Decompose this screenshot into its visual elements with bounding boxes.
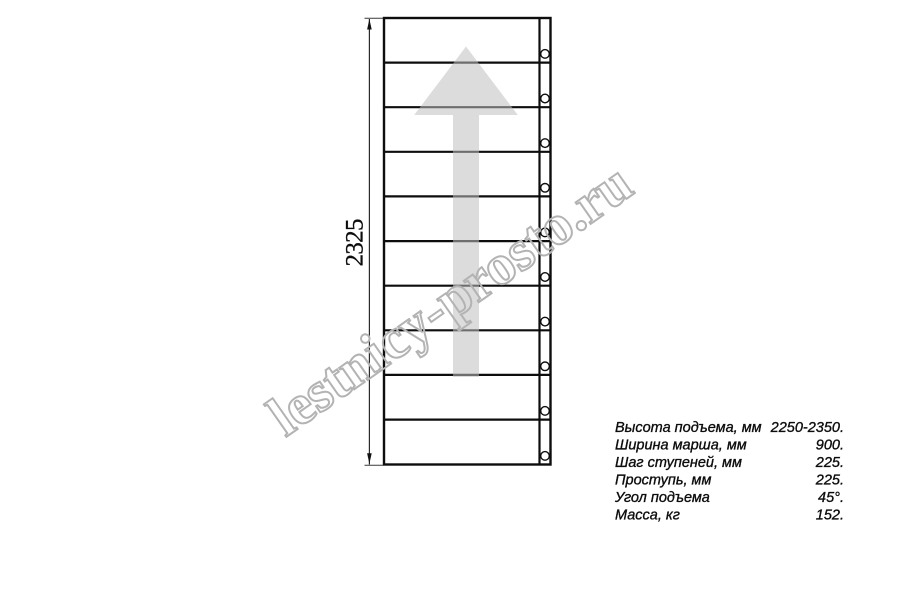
svg-text:900.: 900. <box>816 438 844 454</box>
svg-text:Высота подъема, мм: Высота подъема, мм <box>615 420 762 436</box>
svg-text:Масса, кг: Масса, кг <box>615 508 680 524</box>
svg-text:2325: 2325 <box>342 219 369 267</box>
svg-text:Проступь, мм: Проступь, мм <box>615 473 711 489</box>
svg-text:152.: 152. <box>816 508 844 524</box>
svg-text:45°.: 45°. <box>818 490 844 506</box>
svg-text:Ширина марша, мм: Ширина марша, мм <box>615 438 747 454</box>
svg-text:Угол подъема: Угол подъема <box>614 490 710 506</box>
svg-text:225.: 225. <box>815 455 844 471</box>
svg-text:225.: 225. <box>815 473 844 489</box>
svg-text:Шаг ступеней, мм: Шаг ступеней, мм <box>615 455 742 471</box>
svg-text:2250-2350.: 2250-2350. <box>770 420 844 436</box>
